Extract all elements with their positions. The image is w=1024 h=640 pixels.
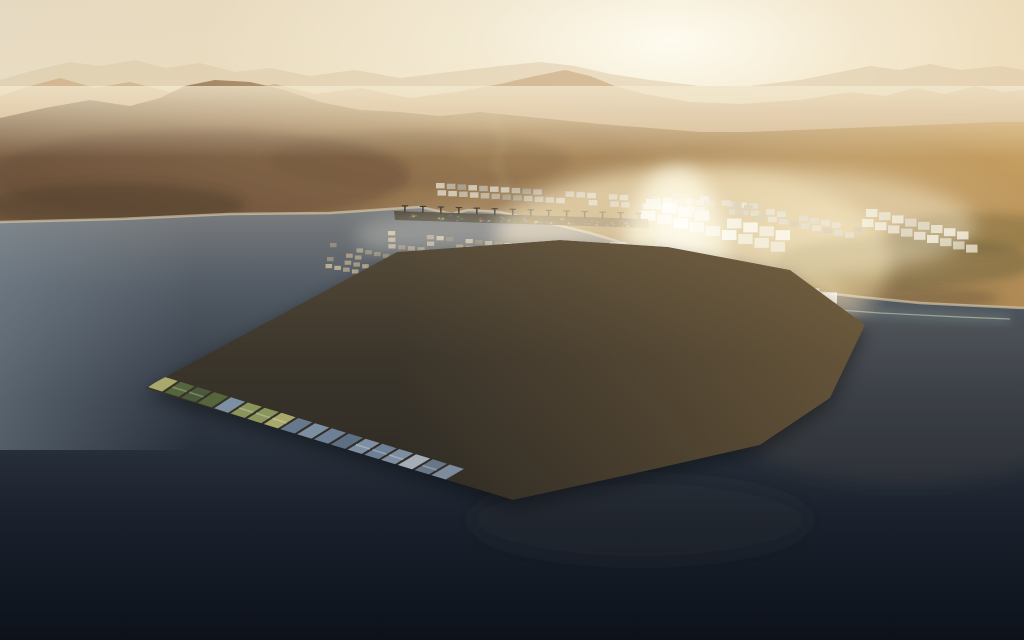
port-block (353, 262, 360, 266)
port-block (374, 252, 381, 256)
port-block (438, 190, 447, 195)
port-crane-arm (402, 205, 408, 206)
port-block (334, 266, 341, 270)
port-block (447, 184, 456, 189)
port-block (326, 264, 333, 268)
port-crane-arm (438, 206, 444, 207)
port-block (327, 257, 334, 261)
port-block (512, 188, 521, 193)
port-crane-arm (420, 206, 426, 207)
port-block (502, 194, 511, 199)
port-block (356, 248, 363, 252)
aerial-cityscape-render (0, 0, 1024, 640)
port-block (492, 194, 501, 199)
port-block (343, 268, 350, 272)
port-block (501, 187, 510, 192)
horizon-haze (0, 86, 1024, 158)
port-block (470, 192, 479, 197)
port-crane-arm (456, 207, 462, 208)
port-block (468, 185, 477, 190)
port-block (479, 186, 488, 191)
port-block (346, 254, 353, 258)
port-block (345, 261, 352, 265)
port-block (966, 245, 978, 253)
port-block (330, 243, 337, 247)
port-block (481, 193, 490, 198)
port-block (459, 192, 468, 197)
port-crane-arm (474, 208, 480, 209)
screenshot-stage (0, 0, 1024, 640)
port-block (458, 184, 467, 189)
scene-svg (0, 0, 1024, 640)
port-crane-arm (492, 208, 498, 209)
port-block (365, 250, 372, 254)
port-block (436, 183, 445, 188)
port-block (490, 187, 499, 192)
port-block (355, 255, 362, 259)
port-block (448, 191, 457, 196)
port-block (352, 269, 359, 273)
port-block (522, 189, 531, 194)
